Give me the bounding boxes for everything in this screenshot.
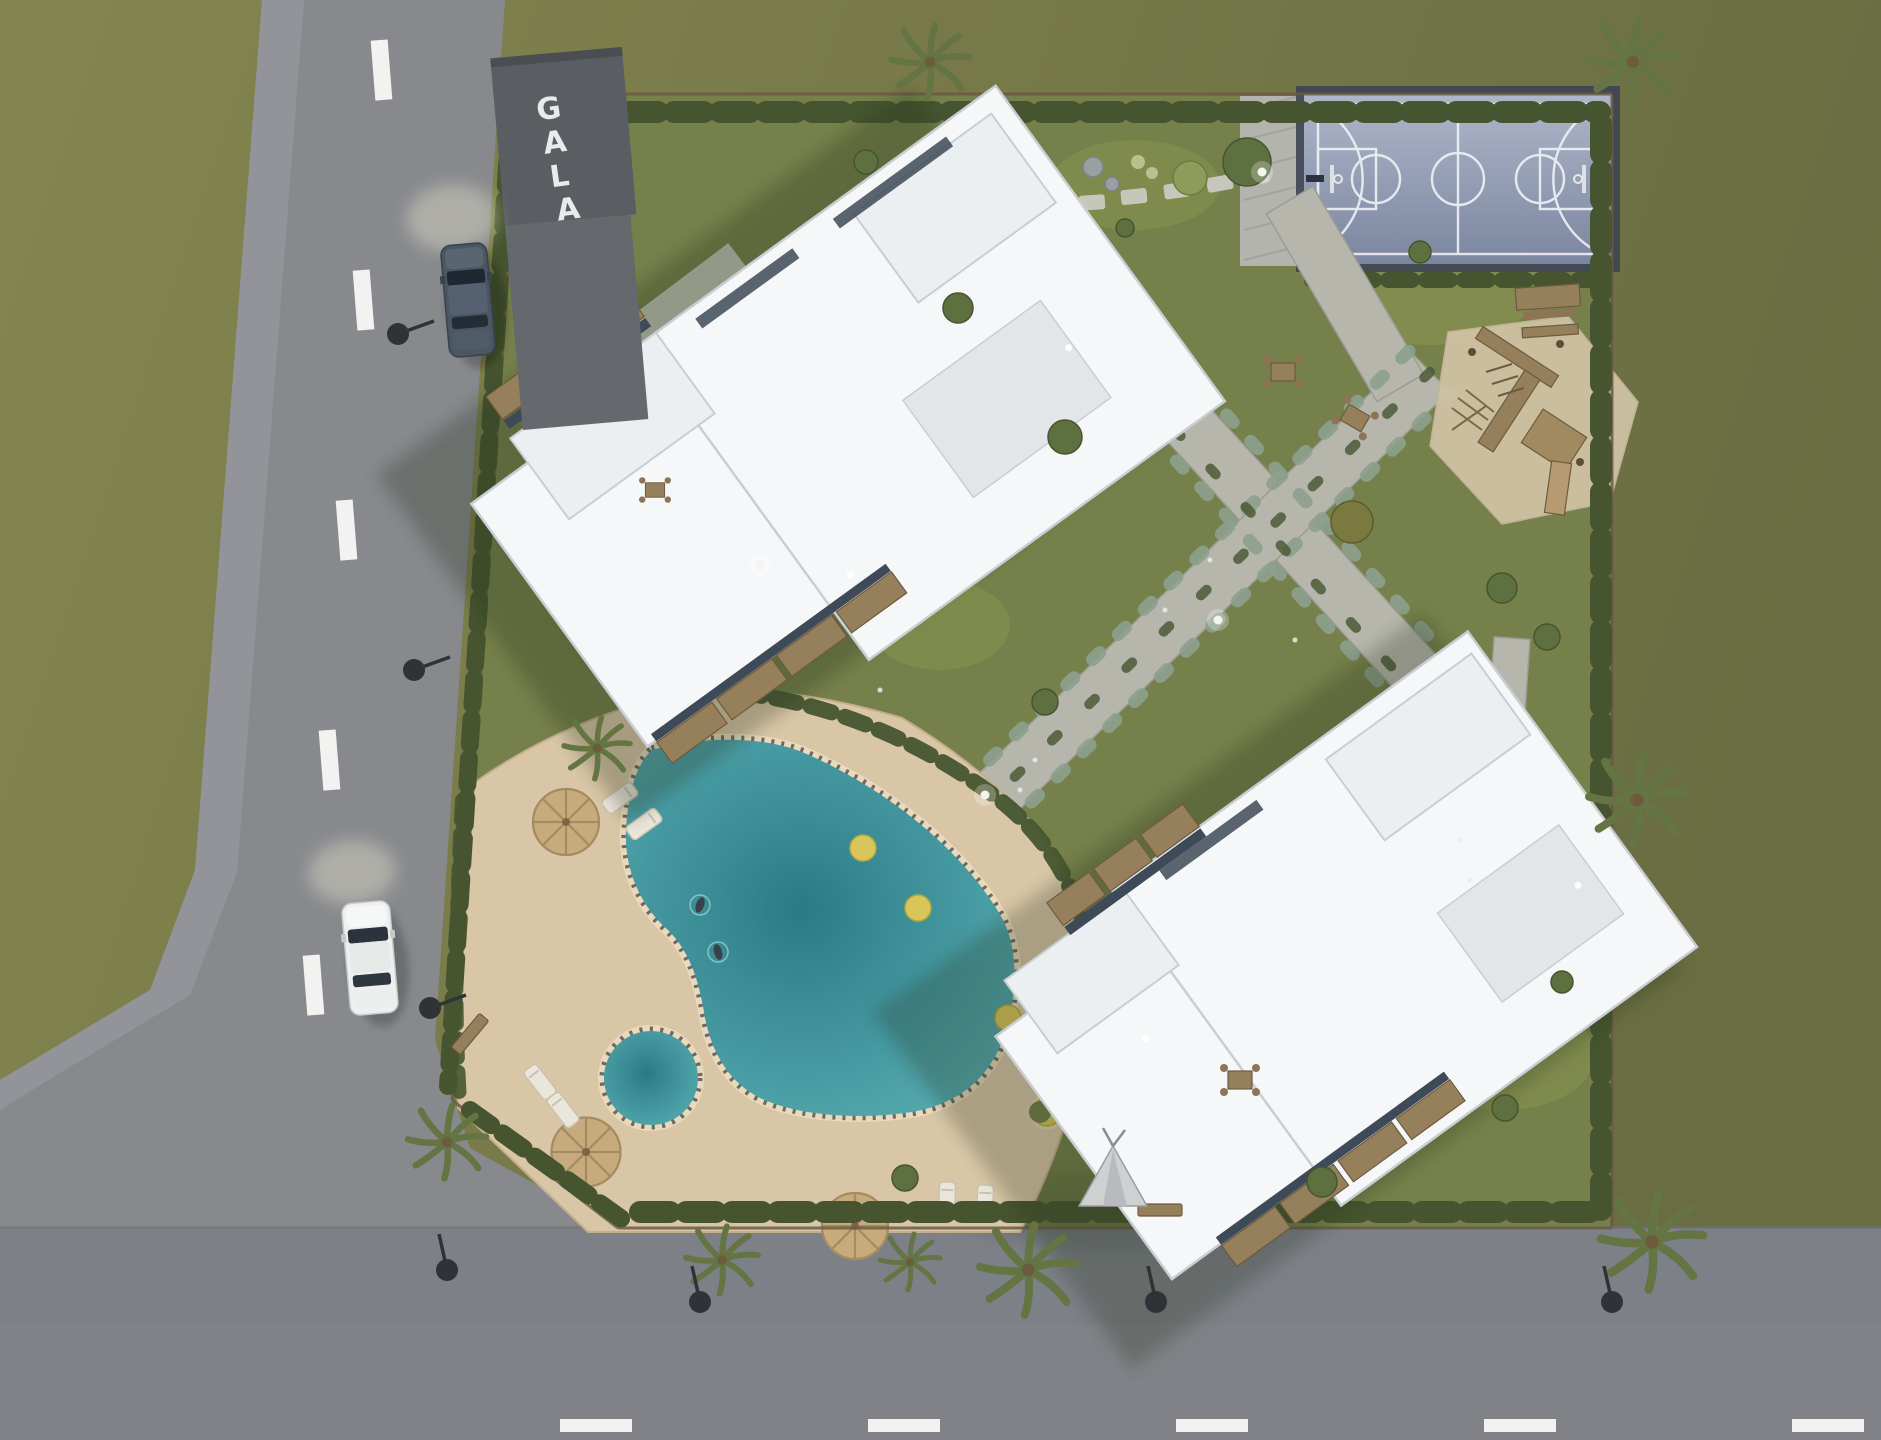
sign-letter: G — [534, 90, 564, 128]
rock — [1083, 157, 1103, 177]
pampas-grass — [1146, 167, 1158, 179]
tree — [1116, 219, 1134, 237]
tree — [892, 1165, 918, 1191]
tree — [1487, 573, 1517, 603]
tree — [1551, 971, 1573, 993]
scene-svg: GALA — [0, 0, 1881, 1440]
tree — [1331, 501, 1373, 543]
tree — [943, 293, 973, 323]
bottom-sidewalk — [0, 1228, 1881, 1324]
bottom-road — [0, 1324, 1881, 1440]
tree — [1409, 241, 1431, 263]
tree — [1032, 689, 1058, 715]
bean-bag — [905, 895, 931, 921]
shrub — [1173, 161, 1207, 195]
sign-letter: A — [554, 191, 583, 229]
sign-letter: A — [541, 124, 570, 162]
tree — [1534, 624, 1560, 650]
straw-umbrella — [533, 789, 599, 855]
rock — [1105, 177, 1119, 191]
entrance-drive — [505, 215, 648, 430]
tree — [1048, 420, 1082, 454]
pampas-grass — [1131, 155, 1145, 169]
tree — [854, 150, 878, 174]
bean-bag — [850, 835, 876, 861]
tree — [1492, 1095, 1518, 1121]
kids-pool — [604, 1031, 698, 1125]
aerial-render-stage: GALA — [0, 0, 1881, 1440]
tree — [1307, 1167, 1337, 1197]
